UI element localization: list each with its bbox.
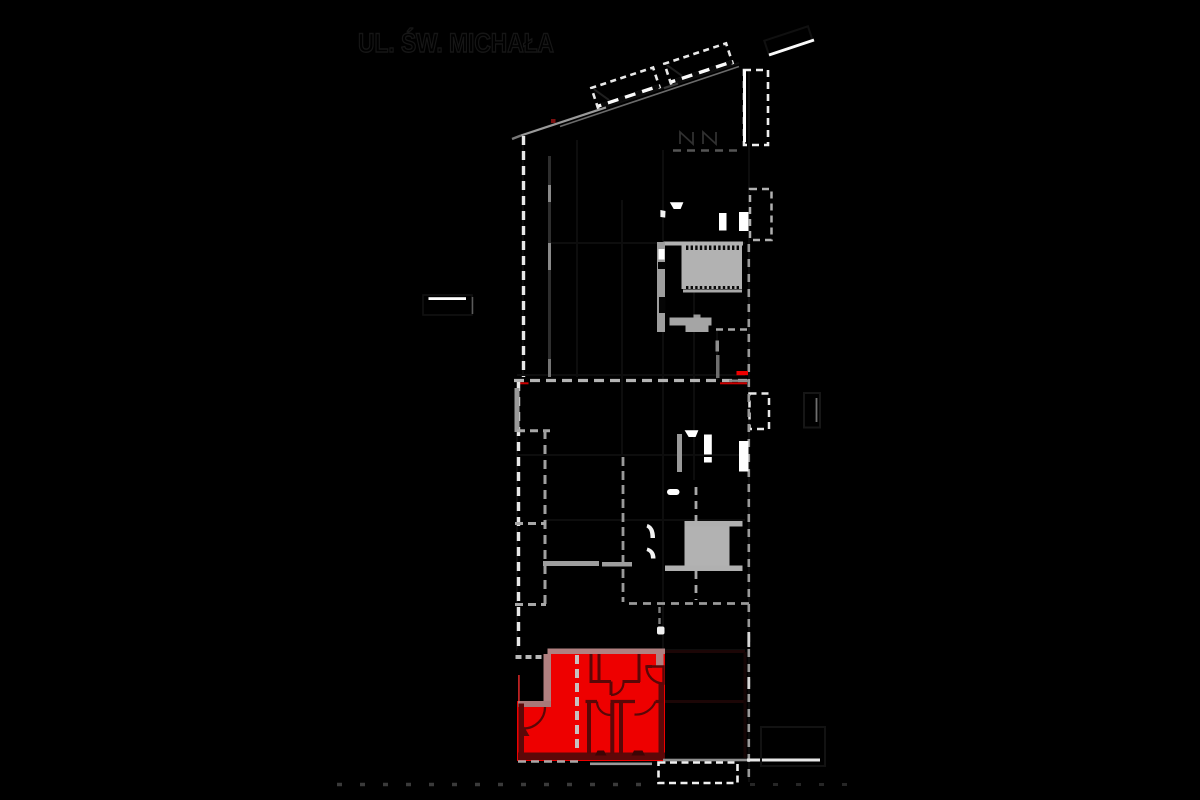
svg-text:UL. ŚW. MICHAŁA: UL. ŚW. MICHAŁA [358,27,554,58]
